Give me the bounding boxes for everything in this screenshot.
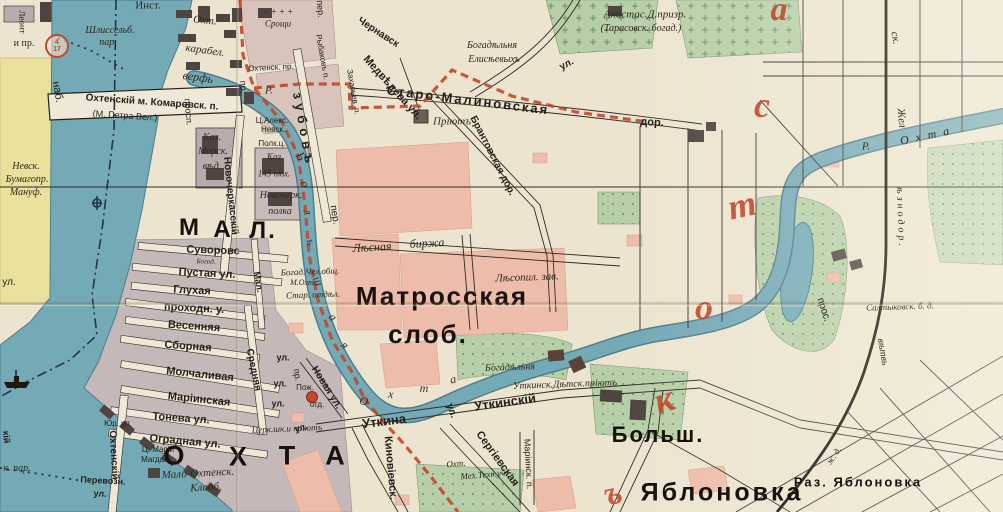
tram-line-number-bottom: 17 [53, 46, 61, 53]
priyut-building [414, 110, 428, 123]
tram-stop-sign: 4 17 [45, 34, 69, 58]
fire-station-dot [307, 392, 318, 403]
manufactory-block [0, 58, 52, 304]
map-canvas: 4 17 Инст.ЛеонтШлиссельб.пар.и пр.наб.Ох… [0, 0, 1003, 512]
horizontal-fold-crease [0, 301, 1003, 307]
vertical-fold-crease [236, 0, 239, 512]
paper-tint [623, 0, 1003, 512]
tram-line-number-top: 4 [55, 39, 59, 46]
